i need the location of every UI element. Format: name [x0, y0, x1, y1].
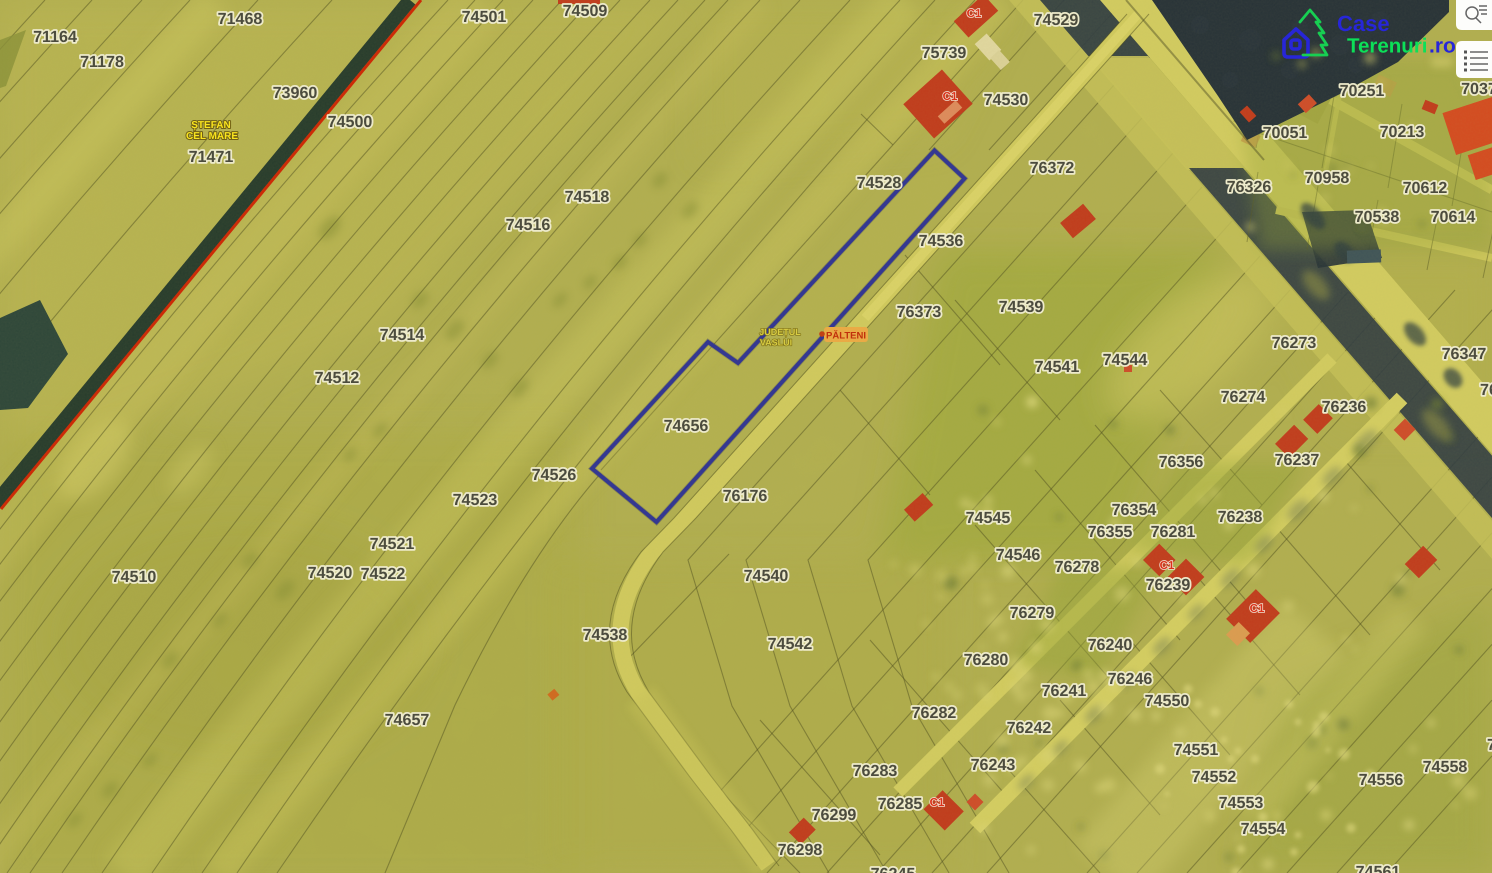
svg-text:Case: Case — [1337, 11, 1390, 36]
svg-text:.ro: .ro — [1429, 35, 1456, 58]
svg-text:Terenuri: Terenuri — [1347, 35, 1428, 58]
